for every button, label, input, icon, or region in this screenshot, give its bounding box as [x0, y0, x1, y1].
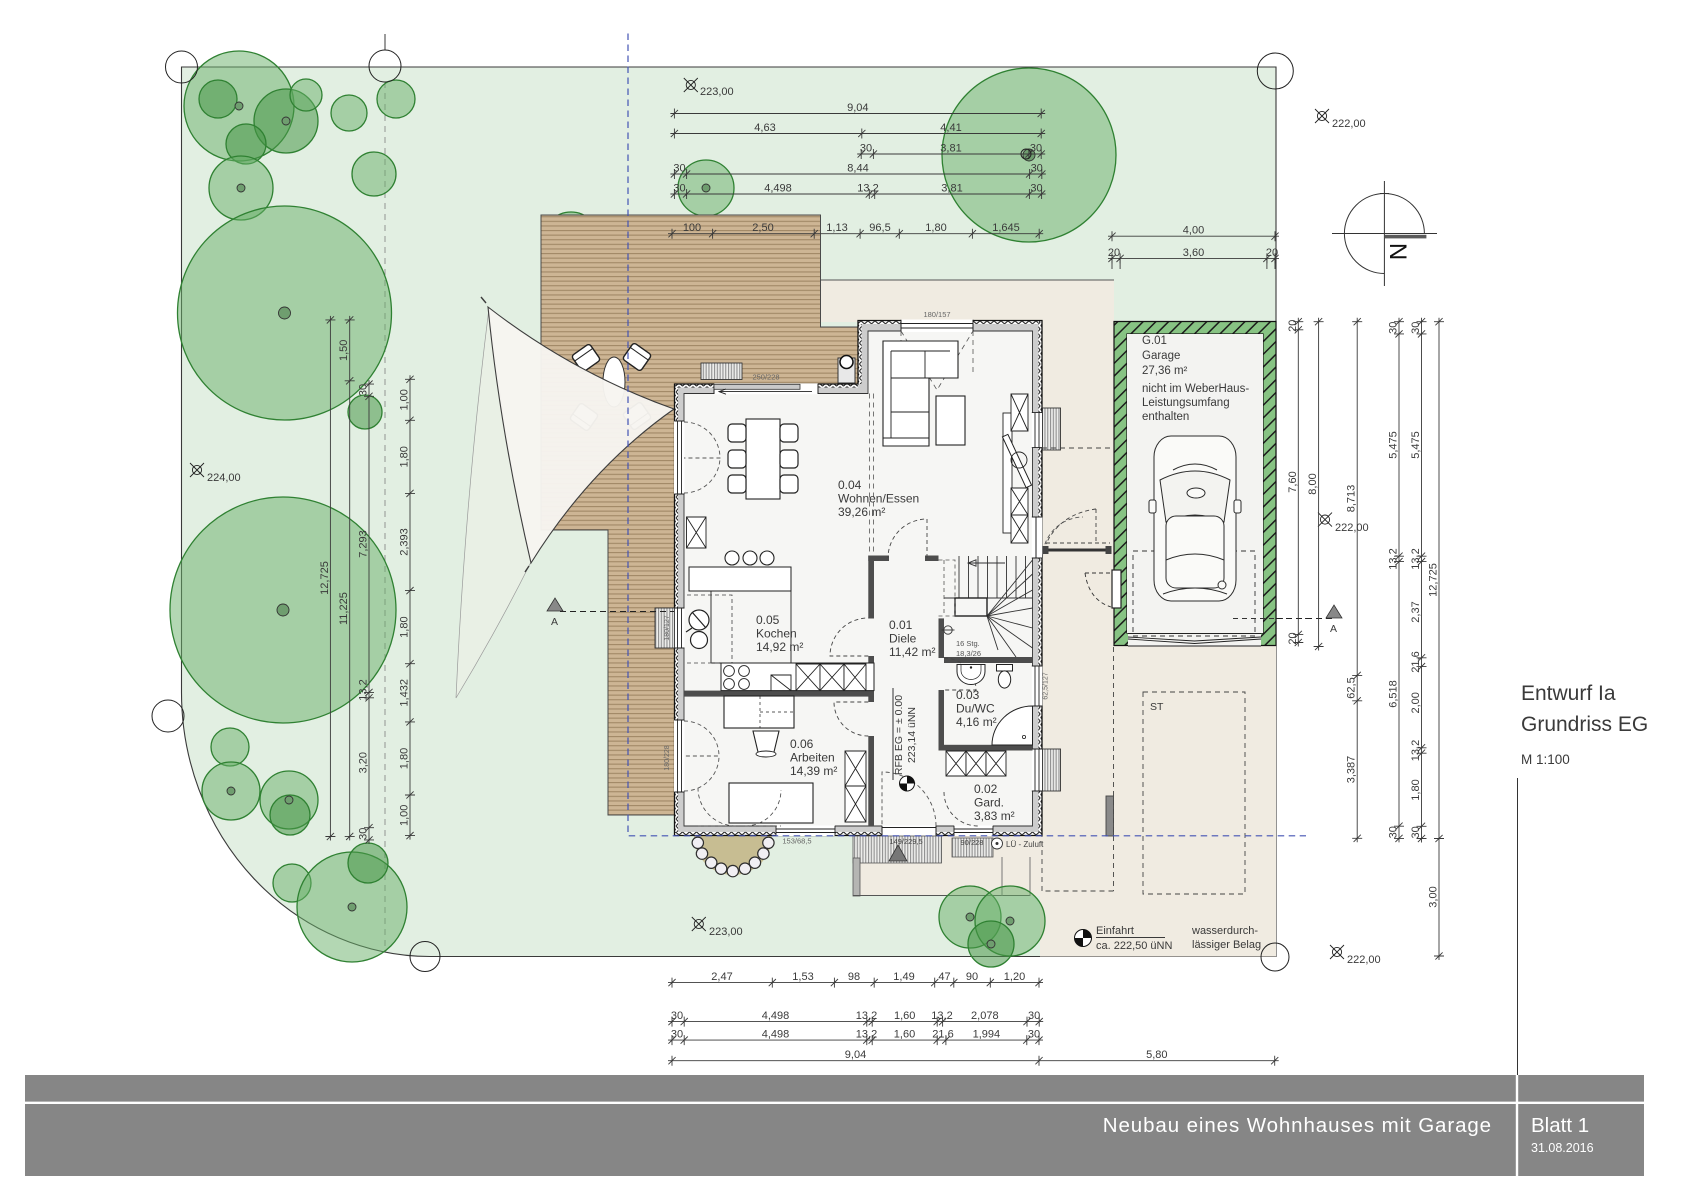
svg-text:20: 20: [1287, 632, 1299, 644]
svg-text:222,00: 222,00: [1335, 522, 1369, 534]
svg-text:1,80: 1,80: [925, 222, 946, 234]
svg-text:Einfahrt: Einfahrt: [1096, 925, 1134, 937]
svg-text:30: 30: [1031, 163, 1043, 175]
svg-text:1,53: 1,53: [792, 971, 813, 983]
svg-text:100: 100: [683, 222, 701, 234]
svg-text:11,225: 11,225: [338, 592, 350, 625]
svg-text:98: 98: [848, 971, 860, 983]
svg-text:Kochen: Kochen: [756, 627, 797, 641]
svg-text:2,50: 2,50: [752, 222, 773, 234]
svg-text:2,47: 2,47: [711, 971, 732, 983]
svg-text:13,2: 13,2: [856, 1029, 877, 1041]
svg-text:2,37: 2,37: [1410, 601, 1422, 622]
svg-text:30: 30: [1028, 1010, 1040, 1022]
svg-text:30: 30: [860, 143, 872, 155]
svg-text:1,00: 1,00: [399, 389, 411, 410]
svg-text:27,36 m²: 27,36 m²: [1142, 365, 1188, 377]
svg-text:16 Stg.: 16 Stg.: [956, 639, 980, 648]
svg-text:5,80: 5,80: [1146, 1049, 1167, 1061]
svg-text:14,92 m²: 14,92 m²: [756, 640, 803, 654]
svg-text:13,2: 13,2: [1410, 548, 1422, 569]
svg-text:4,498: 4,498: [764, 183, 792, 195]
svg-text:1,432: 1,432: [399, 679, 411, 707]
svg-text:180/228: 180/228: [664, 745, 671, 770]
svg-text:30: 30: [1410, 826, 1422, 838]
svg-text:0.03: 0.03: [956, 688, 980, 702]
svg-text:21,6: 21,6: [932, 1029, 953, 1041]
svg-text:1,994: 1,994: [973, 1029, 1001, 1041]
svg-text:4,00: 4,00: [1183, 225, 1204, 237]
svg-text:153/68,5: 153/68,5: [782, 837, 811, 846]
svg-text:Grundriss EG: Grundriss EG: [1521, 713, 1648, 736]
svg-text:A: A: [551, 616, 558, 628]
svg-text:13,2: 13,2: [857, 183, 878, 195]
svg-text:90/228: 90/228: [961, 838, 984, 847]
svg-text:30: 30: [1030, 183, 1042, 195]
svg-text:4,16 m²: 4,16 m²: [956, 715, 997, 729]
svg-text:96,5: 96,5: [869, 222, 890, 234]
svg-text:3,20: 3,20: [358, 752, 370, 773]
svg-text:13,2: 13,2: [1410, 740, 1422, 761]
svg-text:1,00: 1,00: [399, 805, 411, 826]
svg-text:3,60: 3,60: [1183, 247, 1204, 259]
svg-text:M 1:100: M 1:100: [1521, 752, 1570, 767]
svg-text:1,80: 1,80: [1410, 779, 1422, 800]
svg-text:180/127: 180/127: [664, 615, 671, 640]
svg-text:47: 47: [938, 971, 950, 983]
svg-text:Diele: Diele: [889, 632, 917, 646]
svg-text:31.08.2016: 31.08.2016: [1531, 1141, 1594, 1155]
svg-text:90: 90: [966, 971, 978, 983]
svg-text:wasserdurch-: wasserdurch-: [1191, 925, 1258, 937]
svg-text:0.05: 0.05: [756, 613, 780, 627]
svg-text:30: 30: [673, 183, 685, 195]
svg-text:30: 30: [1388, 826, 1400, 838]
svg-text:3,00: 3,00: [1428, 886, 1440, 907]
svg-text:G.01: G.01: [1142, 335, 1167, 347]
svg-text:222,00: 222,00: [1332, 118, 1366, 130]
svg-text:3,81: 3,81: [941, 183, 962, 195]
svg-text:7,60: 7,60: [1287, 471, 1299, 492]
svg-text:30: 30: [358, 384, 370, 396]
svg-text:RFB EG = ± 0.00: RFB EG = ± 0.00: [893, 695, 905, 775]
svg-text:12,725: 12,725: [319, 561, 331, 595]
svg-text:9,04: 9,04: [847, 102, 868, 114]
svg-text:Entwurf Ia: Entwurf Ia: [1521, 682, 1616, 705]
svg-text:Arbeiten: Arbeiten: [790, 751, 835, 765]
svg-text:enthalten: enthalten: [1142, 411, 1189, 423]
svg-text:223,00: 223,00: [700, 86, 734, 98]
svg-text:LÜ - Zuluft: LÜ - Zuluft: [1006, 840, 1044, 849]
svg-text:1,60: 1,60: [894, 1010, 915, 1022]
svg-text:12,725: 12,725: [1428, 563, 1440, 597]
svg-text:0.04: 0.04: [838, 478, 862, 492]
svg-text:30: 30: [1030, 143, 1042, 155]
svg-text:1,80: 1,80: [399, 748, 411, 769]
svg-text:20: 20: [1108, 247, 1120, 259]
svg-text:1,49: 1,49: [893, 971, 914, 983]
svg-text:1,80: 1,80: [399, 446, 411, 467]
svg-text:62,5: 62,5: [1346, 677, 1358, 698]
svg-text:250/228: 250/228: [752, 373, 779, 382]
svg-text:A: A: [1330, 623, 1337, 635]
svg-text:Leistungsumfang: Leistungsumfang: [1142, 397, 1230, 409]
svg-text:222,00: 222,00: [1347, 954, 1381, 966]
svg-text:21,6: 21,6: [1410, 651, 1422, 672]
svg-text:6,518: 6,518: [1388, 680, 1400, 708]
svg-text:11,42 m²: 11,42 m²: [889, 645, 935, 659]
svg-text:0.02: 0.02: [974, 782, 998, 796]
svg-text:1,20: 1,20: [1004, 971, 1025, 983]
svg-text:13,2: 13,2: [931, 1010, 952, 1022]
svg-text:13,2: 13,2: [856, 1010, 877, 1022]
svg-text:Wohnen/Essen: Wohnen/Essen: [838, 492, 919, 506]
svg-text:30: 30: [671, 1029, 683, 1041]
svg-text:1,645: 1,645: [992, 222, 1020, 234]
svg-text:4,41: 4,41: [940, 122, 961, 134]
svg-text:20: 20: [1287, 320, 1299, 332]
svg-text:3,387: 3,387: [1346, 756, 1358, 784]
svg-text:13,2: 13,2: [358, 679, 370, 700]
svg-text:18,3/26: 18,3/26: [956, 649, 981, 658]
svg-text:180/157: 180/157: [923, 310, 950, 319]
svg-text:Du/WC: Du/WC: [956, 702, 995, 716]
svg-text:Blatt 1: Blatt 1: [1531, 1114, 1589, 1137]
svg-text:8,44: 8,44: [847, 163, 868, 175]
svg-text:30: 30: [1028, 1029, 1040, 1041]
svg-text:9,04: 9,04: [845, 1049, 866, 1061]
svg-text:223,00: 223,00: [709, 926, 743, 938]
svg-text:N: N: [1384, 243, 1411, 260]
svg-text:nicht im WeberHaus-: nicht im WeberHaus-: [1142, 383, 1249, 395]
svg-text:13,2: 13,2: [1388, 548, 1400, 569]
svg-text:ST: ST: [1150, 701, 1164, 713]
svg-text:4,498: 4,498: [762, 1010, 790, 1022]
svg-text:2,078: 2,078: [971, 1010, 999, 1022]
svg-text:Neubau eines Wohnhauses mit Ga: Neubau eines Wohnhauses mit Garage: [1103, 1114, 1492, 1137]
svg-text:4,498: 4,498: [762, 1029, 790, 1041]
svg-text:2,393: 2,393: [399, 528, 411, 556]
svg-text:30: 30: [673, 163, 685, 175]
svg-text:1,50: 1,50: [338, 340, 350, 361]
svg-text:8,713: 8,713: [1346, 485, 1358, 513]
svg-text:8,00: 8,00: [1307, 473, 1319, 494]
svg-text:0.01: 0.01: [889, 618, 913, 632]
svg-text:lässiger Belag: lässiger Belag: [1192, 939, 1261, 951]
svg-text:2,00: 2,00: [1410, 692, 1422, 713]
svg-text:3,81: 3,81: [940, 143, 961, 155]
svg-text:14,39 m²: 14,39 m²: [790, 764, 837, 778]
svg-text:4,63: 4,63: [754, 122, 775, 134]
svg-text:ca. 222,50 üNN: ca. 222,50 üNN: [1096, 940, 1172, 952]
svg-text:0.06: 0.06: [790, 737, 814, 751]
svg-text:7,293: 7,293: [358, 530, 370, 558]
svg-text:5,475: 5,475: [1388, 431, 1400, 459]
svg-text:Gard.: Gard.: [974, 796, 1004, 810]
svg-text:62,5/127: 62,5/127: [1043, 672, 1050, 699]
svg-text:30: 30: [671, 1010, 683, 1022]
svg-text:20: 20: [1266, 247, 1278, 259]
svg-text:30: 30: [358, 828, 370, 840]
svg-text:224,00: 224,00: [207, 472, 241, 484]
svg-text:149/229,5: 149/229,5: [889, 837, 922, 846]
svg-text:1,80: 1,80: [399, 616, 411, 637]
svg-text:3,83 m²: 3,83 m²: [974, 809, 1015, 823]
svg-text:1,60: 1,60: [894, 1029, 915, 1041]
svg-text:39,26 m²: 39,26 m²: [838, 505, 885, 519]
svg-text:30: 30: [1388, 322, 1400, 334]
svg-text:223,14 üNN: 223,14 üNN: [906, 707, 918, 763]
svg-text:30: 30: [1410, 322, 1422, 334]
svg-text:5,475: 5,475: [1410, 431, 1422, 459]
svg-text:Garage: Garage: [1142, 350, 1180, 362]
svg-text:1,13: 1,13: [826, 222, 847, 234]
